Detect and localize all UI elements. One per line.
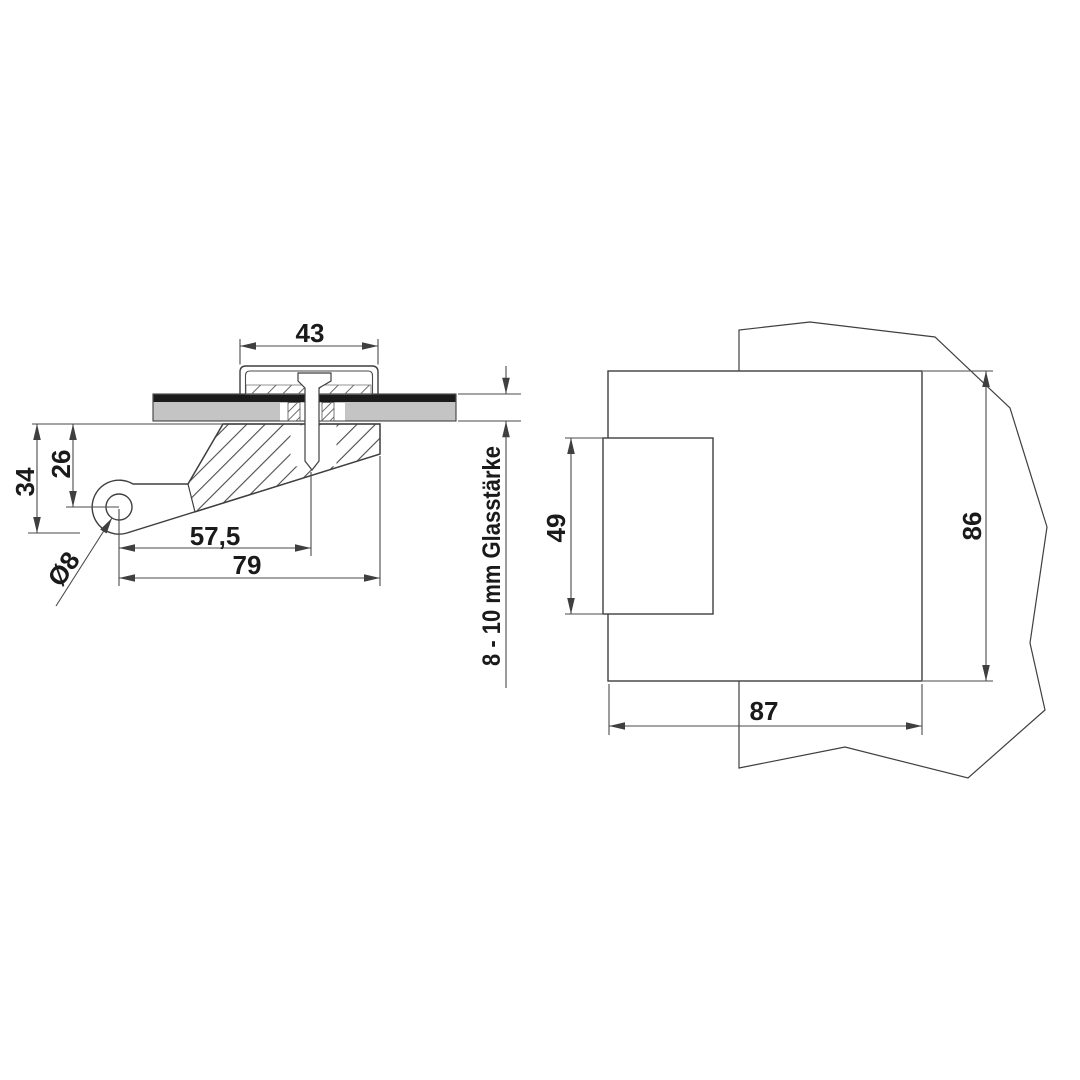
bolt-bushing-right [322, 403, 334, 422]
clamp-body-section-hatch [188, 424, 380, 512]
dimension-label: 87 [750, 696, 779, 726]
dimension-label: 34 [10, 467, 40, 496]
dimension-label: 43 [296, 318, 325, 348]
dim-body-width: 87 [609, 684, 922, 735]
clamp-jaw-plate [603, 438, 713, 614]
dim-jaw-width: 49 [541, 438, 604, 614]
bolt-bushing-left [288, 403, 300, 422]
dimension-label: Ø8 [41, 546, 85, 592]
technical-drawing-page: 43 26 34 57,5 79 [0, 0, 1080, 1080]
dimension-label: 57,5 [190, 521, 241, 551]
dim-glass-thickness: 8 - 10 mm Glasstärke [458, 366, 521, 688]
dim-cap-width: 43 [240, 318, 378, 365]
dimension-label: 86 [957, 512, 987, 541]
glass-thickness-label: 8 - 10 mm Glasstärke [478, 446, 506, 666]
technical-drawing-canvas: 43 26 34 57,5 79 [0, 0, 1080, 1080]
dimension-label: 26 [46, 450, 76, 479]
dim-pivot-hole: Ø8 [41, 518, 112, 606]
dimension-label: 49 [541, 514, 571, 543]
top-plan-view: 49 86 87 [541, 322, 1047, 778]
side-section-view: 43 26 34 57,5 79 [10, 318, 521, 688]
dim-body-depth: 86 [923, 371, 993, 681]
dimension-label: 79 [233, 550, 262, 580]
